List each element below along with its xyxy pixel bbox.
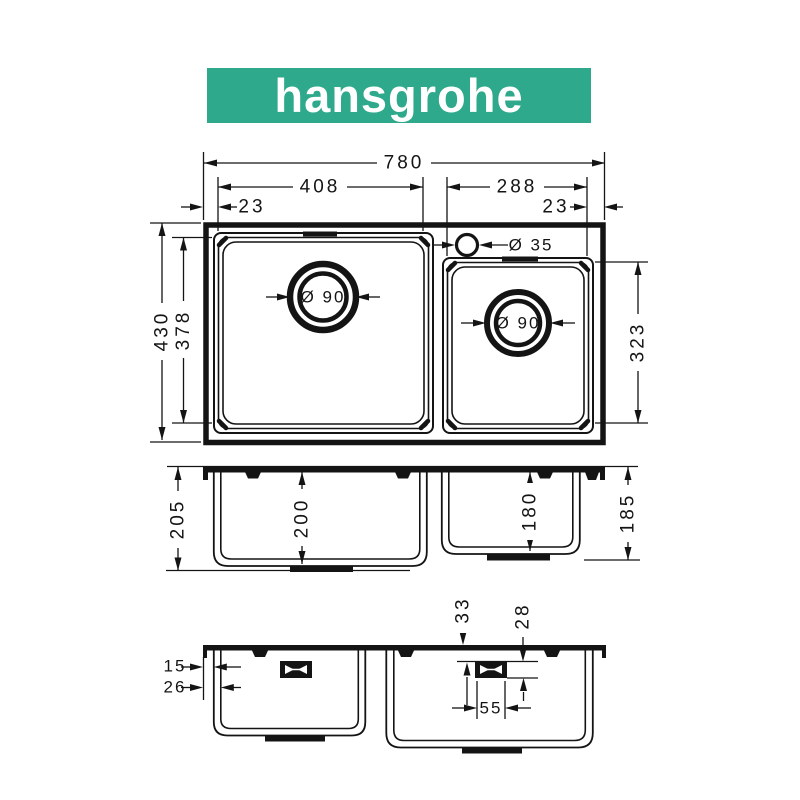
dim-margin-left: 23 bbox=[238, 197, 265, 218]
dim-total-width: 780 bbox=[384, 153, 425, 174]
dim-margin-right: 23 bbox=[542, 197, 569, 218]
dim-outer-depth-left: 205 bbox=[168, 499, 189, 540]
dim-right-bowl-width: 288 bbox=[497, 177, 538, 198]
dim-right-bowl-depth: 323 bbox=[628, 322, 649, 363]
dim-line-23-left bbox=[181, 204, 237, 211]
dim-left-bowl-depth: 378 bbox=[173, 310, 194, 351]
top-view: Ø 35 Ø 90 Ø 90 bbox=[150, 152, 649, 443]
dim-rim-to-wall-outer: 15 bbox=[164, 657, 187, 676]
faucet-hole bbox=[434, 235, 508, 256]
back-view: 15 26 33 28 bbox=[164, 589, 606, 754]
technical-drawing-page: hansgrohe bbox=[0, 0, 800, 800]
mounting-clips-front bbox=[245, 472, 599, 480]
dim-left-bowl-height: 200 bbox=[292, 498, 313, 539]
mounting-bracket-left bbox=[280, 661, 312, 678]
dim-clip-width: 55 bbox=[480, 699, 503, 718]
dim-clip-offset-top: 33 bbox=[453, 596, 474, 623]
mounting-clips-back bbox=[252, 651, 560, 658]
mounting-bracket-right bbox=[475, 661, 507, 678]
dim-left-drain-diameter: Ø 90 bbox=[301, 288, 346, 307]
left-bowl-front bbox=[214, 472, 427, 572]
dim-line-15-26 bbox=[181, 657, 241, 700]
dim-right-drain-diameter: Ø 90 bbox=[496, 314, 541, 333]
dim-left-bowl-width: 408 bbox=[300, 177, 341, 198]
dimension-drawing: Ø 35 Ø 90 Ø 90 bbox=[0, 0, 800, 800]
front-view: 205 200 180 185 bbox=[166, 467, 640, 573]
dim-rim-to-wall-inner: 26 bbox=[164, 678, 187, 697]
right-bowl-front bbox=[442, 472, 580, 561]
sink-rim-front bbox=[203, 467, 605, 473]
sink-rim-back bbox=[203, 645, 606, 651]
dim-line-23-right bbox=[570, 204, 623, 211]
top-view-extension-lines bbox=[150, 152, 648, 442]
dim-outer-depth-right: 185 bbox=[618, 493, 639, 534]
dim-faucet-diameter: Ø 35 bbox=[509, 236, 554, 255]
dim-total-depth: 430 bbox=[152, 311, 173, 352]
dim-right-bowl-height: 180 bbox=[520, 491, 541, 532]
dim-clip-offset-inner: 28 bbox=[513, 602, 534, 629]
